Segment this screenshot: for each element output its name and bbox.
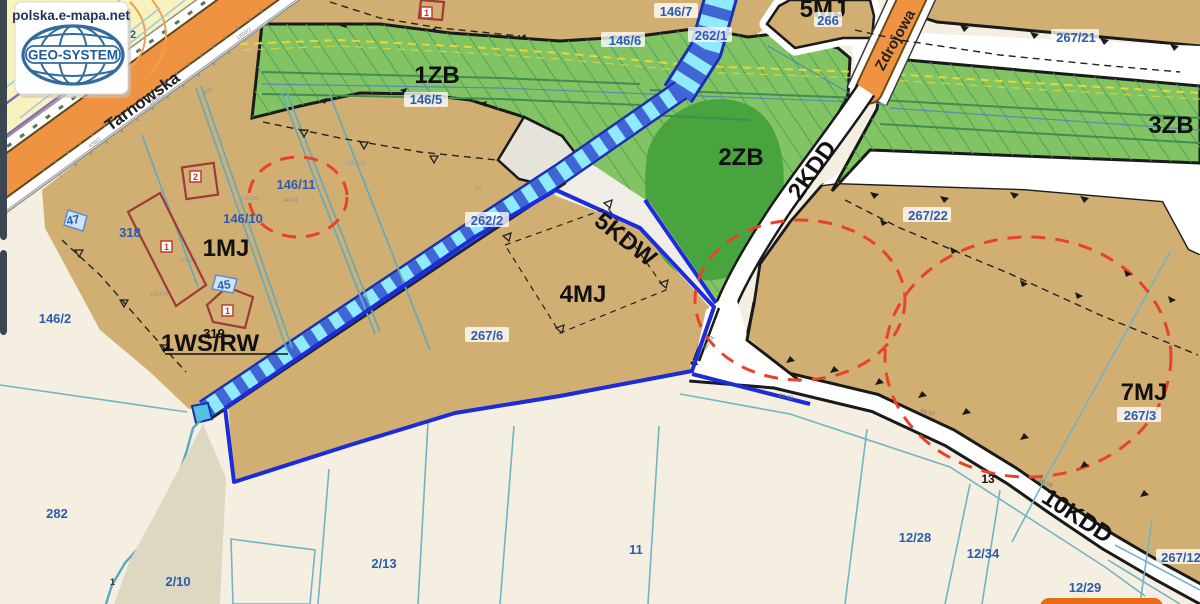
svg-text:1MJ: 1MJ bbox=[203, 235, 250, 262]
svg-text:1: 1 bbox=[164, 242, 169, 252]
svg-text:267/21: 267/21 bbox=[1056, 30, 1096, 45]
svg-text:2: 2 bbox=[193, 172, 198, 182]
svg-text:146/6: 146/6 bbox=[609, 33, 642, 48]
svg-text:262/1: 262/1 bbox=[695, 28, 728, 43]
svg-text:10: 10 bbox=[475, 186, 482, 192]
svg-text:12/34: 12/34 bbox=[967, 546, 1000, 561]
svg-text:1ZB: 1ZB bbox=[414, 62, 459, 89]
svg-text:318: 318 bbox=[119, 225, 141, 240]
svg-text:GEO-SYSTEM: GEO-SYSTEM bbox=[28, 48, 118, 63]
svg-text:319: 319 bbox=[203, 326, 225, 341]
svg-text:282: 282 bbox=[46, 506, 68, 521]
svg-text:45: 45 bbox=[216, 277, 231, 293]
svg-text:2ZB: 2ZB bbox=[718, 144, 763, 171]
svg-text:267/22: 267/22 bbox=[908, 208, 948, 223]
svg-text:4MJ: 4MJ bbox=[560, 281, 607, 308]
svg-text:1: 1 bbox=[225, 306, 230, 316]
svg-text:267/6: 267/6 bbox=[471, 328, 504, 343]
svg-text:146/5: 146/5 bbox=[410, 92, 443, 107]
svg-text:1: 1 bbox=[424, 8, 429, 18]
svg-text:267/12: 267/12 bbox=[1161, 550, 1200, 565]
svg-text:146/2: 146/2 bbox=[39, 311, 72, 326]
svg-text:7MJ: 7MJ bbox=[1121, 379, 1168, 406]
svg-text:11: 11 bbox=[629, 542, 643, 557]
svg-text:146/10: 146/10 bbox=[223, 211, 263, 226]
svg-text:13: 13 bbox=[981, 472, 995, 486]
svg-text:2/10: 2/10 bbox=[165, 574, 190, 589]
svg-text:262/2: 262/2 bbox=[471, 213, 504, 228]
svg-text:47: 47 bbox=[65, 212, 81, 228]
svg-text:1850/9: 1850/9 bbox=[240, 196, 259, 202]
svg-text:146/7: 146/7 bbox=[660, 4, 693, 19]
svg-text:12/29: 12/29 bbox=[1069, 580, 1102, 595]
svg-text:1850/11: 1850/11 bbox=[345, 161, 367, 167]
svg-text:267/3: 267/3 bbox=[1124, 408, 1157, 423]
svg-text:1: 1 bbox=[110, 577, 115, 587]
svg-text:polska.e-mapa.net: polska.e-mapa.net bbox=[12, 8, 130, 23]
svg-text:266: 266 bbox=[817, 13, 839, 28]
svg-text:12/28: 12/28 bbox=[899, 530, 932, 545]
svg-text:146/11: 146/11 bbox=[283, 198, 298, 204]
svg-text:2/13: 2/13 bbox=[371, 556, 396, 571]
svg-text:146/11: 146/11 bbox=[276, 177, 315, 192]
svg-text:1850/6: 1850/6 bbox=[150, 292, 169, 298]
svg-text:3ZB: 3ZB bbox=[1148, 112, 1193, 139]
